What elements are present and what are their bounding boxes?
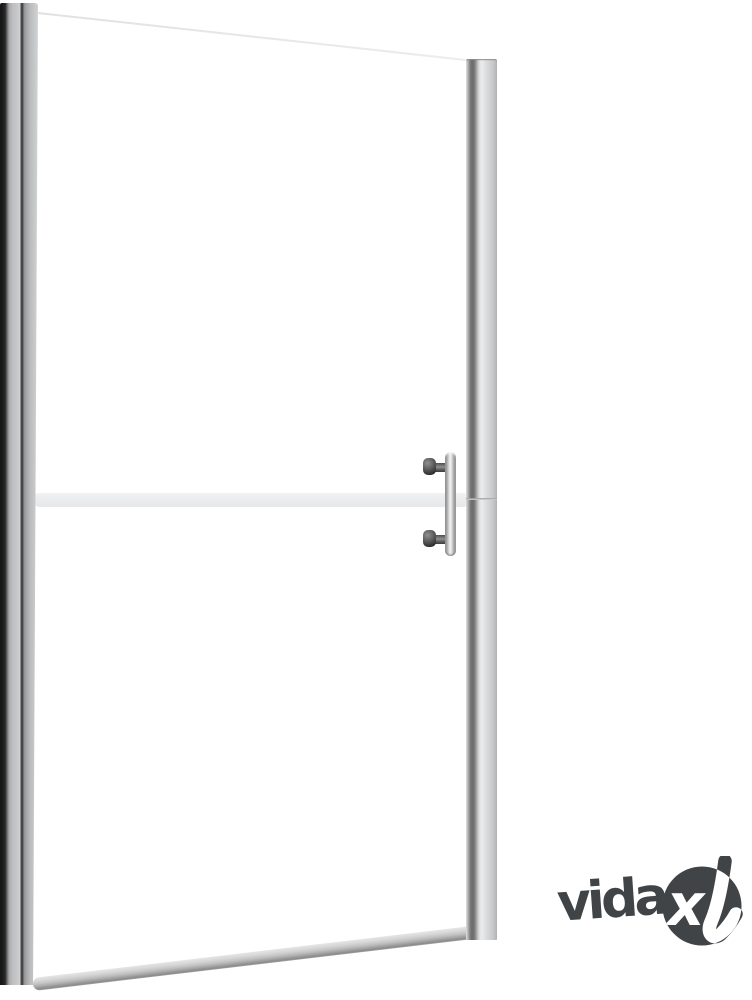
bottom-rail xyxy=(32,927,467,991)
product-photo: vida x xyxy=(0,0,752,1000)
frame-seam xyxy=(466,498,497,500)
right-frame-profile xyxy=(466,59,497,940)
glass-top-edge xyxy=(38,12,466,61)
handle-mount-knob-bottom xyxy=(423,530,436,547)
door-handle-bar xyxy=(445,452,456,556)
left-frame-profile xyxy=(0,3,38,985)
brand-badge-x: x xyxy=(664,871,706,939)
handle-mount-knob-top xyxy=(423,458,436,475)
frosted-privacy-stripe xyxy=(33,493,466,507)
vidaxl-logo: vida x xyxy=(554,856,748,956)
brand-wordmark: vida xyxy=(555,866,667,933)
